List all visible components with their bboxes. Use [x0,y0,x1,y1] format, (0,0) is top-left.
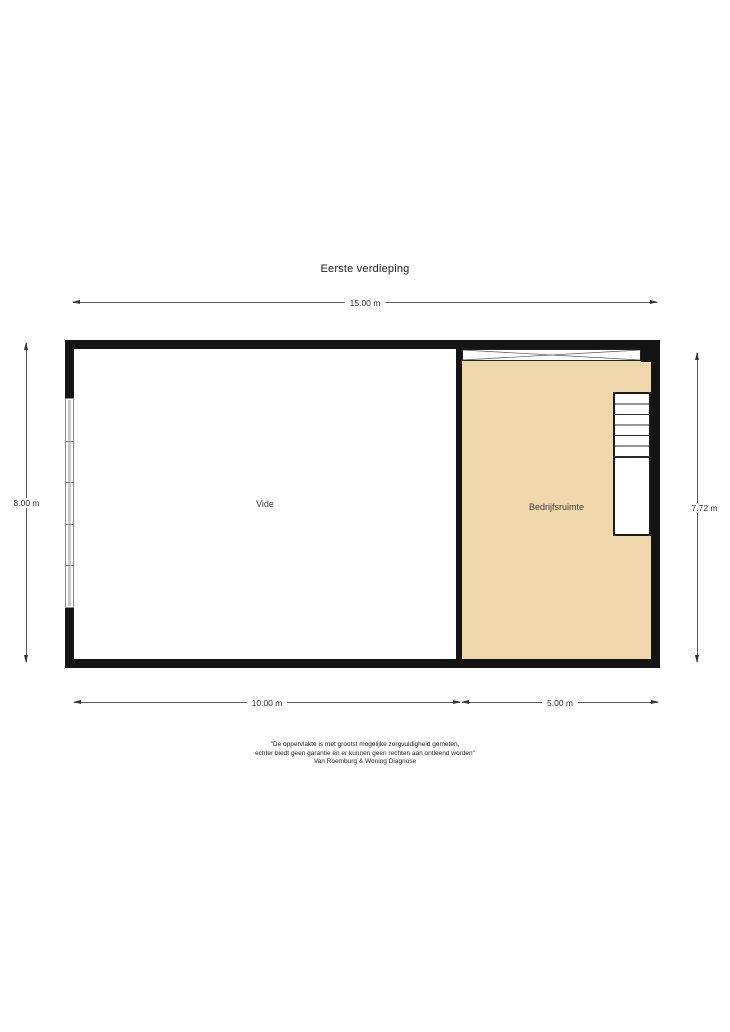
dimension-bottom-left-label: 10.00 m [247,698,288,708]
wall-stub [641,349,651,362]
dim-arrow-right-icon [453,700,461,704]
dim-arrow-right-icon [650,300,658,304]
dim-arrow-up-icon [695,352,699,360]
window-mullion [66,524,73,525]
disclaimer-line-1: "De oppervlakte is met grootst mogelijke… [0,741,730,750]
dimension-bottom-right-label: 5.00 m [542,698,578,708]
room-vide-label: Vide [74,499,456,509]
room-vide: Vide [74,349,456,659]
window-mullion [66,482,73,483]
window-mullion [66,441,73,442]
dim-arrow-up-icon [24,342,28,350]
dim-arrow-down-icon [24,655,28,663]
dim-arrow-left-icon [73,700,81,704]
dim-arrow-down-icon [695,655,699,663]
dim-arrow-left-icon [461,700,469,704]
dim-arrow-left-icon [72,300,80,304]
dimension-top-label: 15.00 m [345,298,386,308]
dimension-left-label: 8.00 m [9,498,45,508]
disclaimer-line-2: echter biedt geen garantie en er kunnen … [0,750,730,759]
dimension-bottom-right: 5.00 m [461,699,659,706]
window-left-wall [65,398,74,608]
floorplan-page: { "title": "Eerste verdieping", "floor_p… [0,0,730,1032]
dimension-right-label: 7.72 m [687,503,723,513]
dimension-top: 15.00 m [72,299,658,306]
dimension-left: 8.00 m [23,342,30,663]
dimension-right: 7.72 m [694,352,701,663]
dimension-bottom-left: 10.00 m [73,699,461,706]
dim-arrow-right-icon [651,700,659,704]
disclaimer: "De oppervlakte is met grootst mogelijke… [0,741,730,767]
staircase [613,392,651,536]
window-mullion [66,565,73,566]
disclaimer-line-3: Van Roemburg & Woning Diagnose [0,758,730,767]
window-glass-icon [463,350,640,360]
floor-title: Eerste verdieping [0,263,730,275]
window-glass-top [462,349,641,361]
window-pane [68,400,71,606]
floorplan: Vide Bedrijfsruimte [65,340,660,668]
staircase-treads [615,394,649,458]
